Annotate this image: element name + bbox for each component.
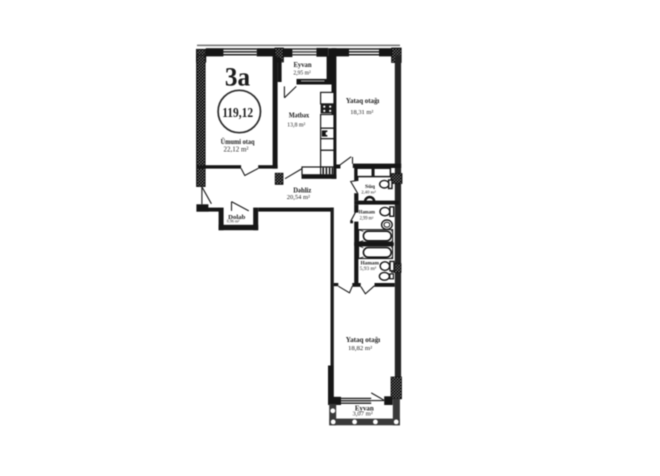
svg-text:18,31 m²: 18,31 m² <box>350 109 373 116</box>
svg-text:22,12 m²: 22,12 m² <box>224 146 249 154</box>
svg-text:18,82 m²: 18,82 m² <box>348 345 372 352</box>
svg-text:Eyvan: Eyvan <box>293 61 311 69</box>
svg-text:3,07 m²: 3,07 m² <box>353 411 373 418</box>
svg-text:2,99 m²: 2,99 m² <box>360 216 374 222</box>
svg-text:13,8 m²: 13,8 m² <box>287 122 305 129</box>
svg-text:119,12: 119,12 <box>222 106 253 121</box>
svg-text:Yataq otağı: Yataq otağı <box>346 335 381 344</box>
svg-text:Yataq otağı: Yataq otağı <box>346 96 380 105</box>
svg-text:5,93 m²: 5,93 m² <box>360 266 377 272</box>
svg-text:2,95 m²: 2,95 m² <box>293 70 310 77</box>
svg-text:Hamam: Hamam <box>359 210 376 216</box>
svg-text:20,54 m²: 20,54 m² <box>287 194 310 201</box>
svg-text:3a: 3a <box>225 62 250 91</box>
svg-text:Ümumi otaq: Ümumi otaq <box>221 137 256 146</box>
svg-text:Hamam: Hamam <box>361 260 380 266</box>
svg-text:Mətbəx: Mətbəx <box>289 110 310 119</box>
